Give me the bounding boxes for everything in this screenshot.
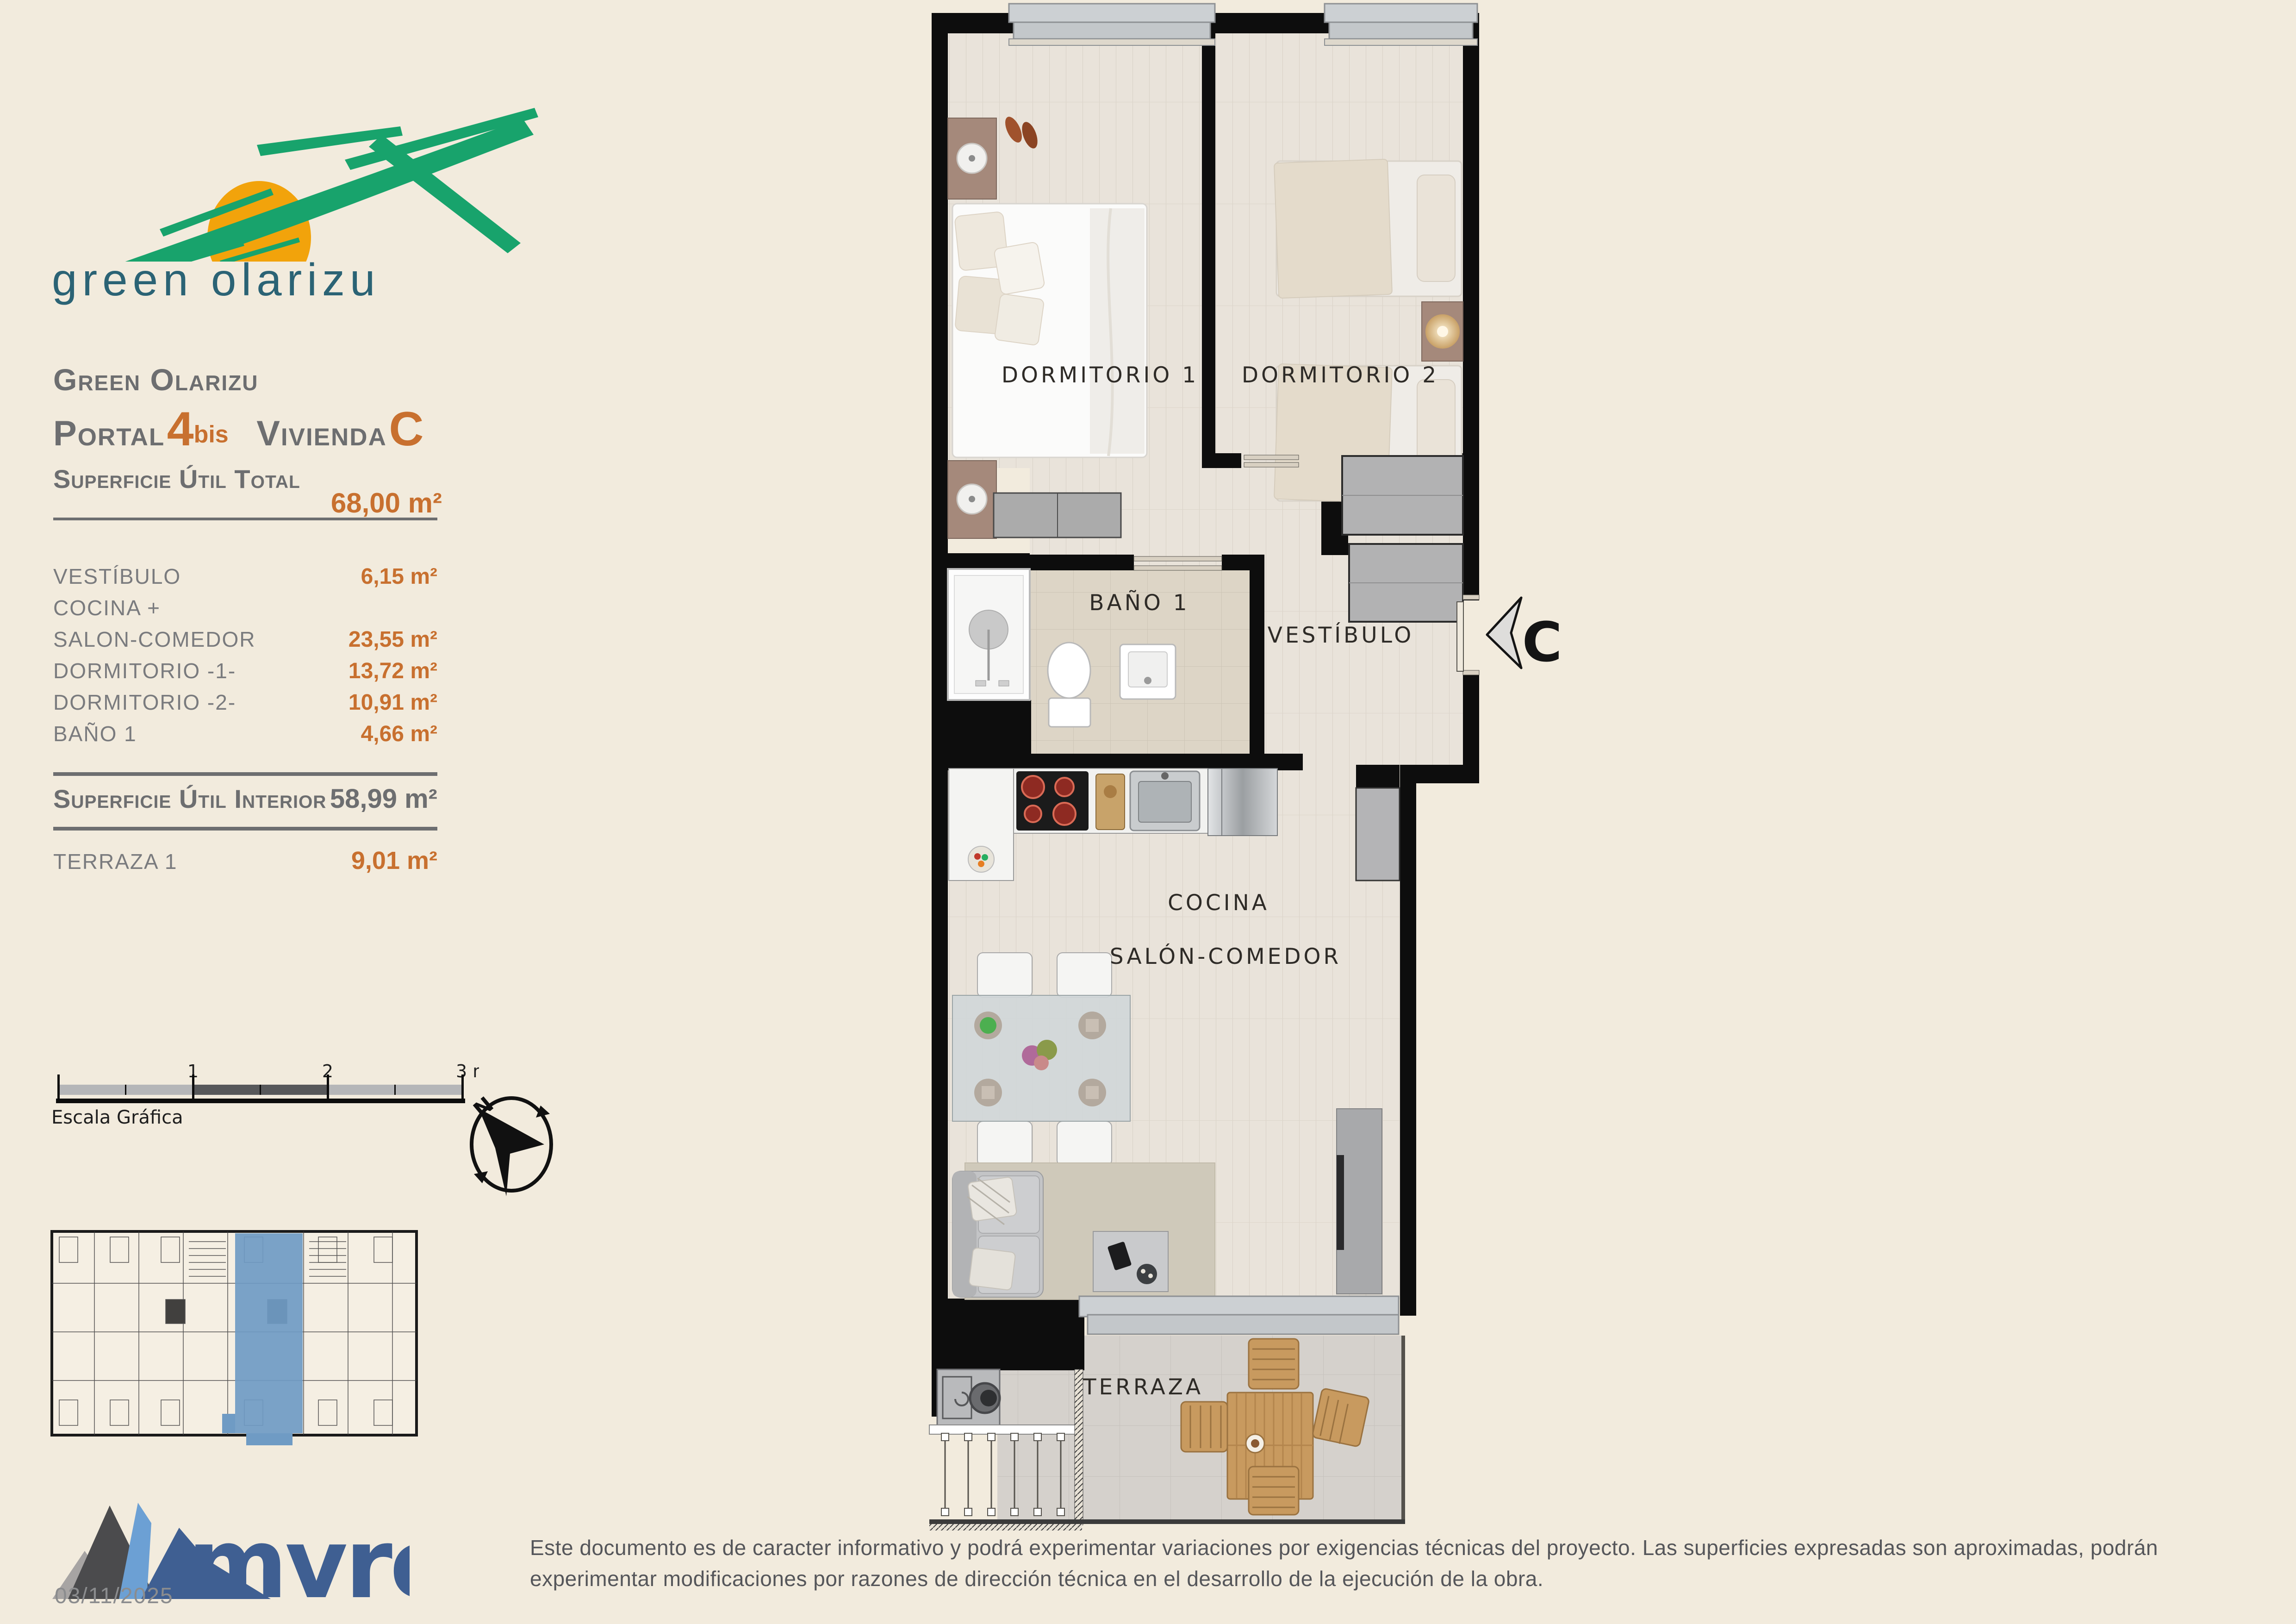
document-date: 03/11/2025: [55, 1583, 174, 1609]
label-vestibulo: VESTÍBULO: [1268, 623, 1414, 648]
entry-arrow-icon: [1487, 598, 1521, 668]
label-dormitorio2: DORMITORIO 2: [1242, 362, 1439, 388]
entrance-marker: C: [1487, 598, 1562, 674]
label-terraza: TERRAZA: [1083, 1374, 1203, 1400]
mvre-wordmark: mvre: [187, 1508, 410, 1605]
label-salon-comedor: SALÓN-COMEDOR: [1110, 944, 1341, 969]
entry-door-icon: [1457, 595, 1479, 675]
legal-disclaimer: Este documento es de caracter informativ…: [530, 1532, 2275, 1594]
apartment-floor-plan: DORMITORIO 1 DORMITORIO 2 BAÑO 1 VESTÍBU…: [0, 0, 2296, 1624]
entry-letter: C: [1522, 610, 1562, 674]
label-dormitorio1: DORMITORIO 1: [1002, 362, 1199, 388]
terrace-slider-window-icon: [1079, 1296, 1399, 1334]
label-bano1: BAÑO 1: [1089, 590, 1189, 616]
label-cocina: COCINA: [1168, 890, 1269, 916]
floorplan-document: green olarizu Green Olarizu Portal 4bis …: [0, 0, 2296, 1624]
